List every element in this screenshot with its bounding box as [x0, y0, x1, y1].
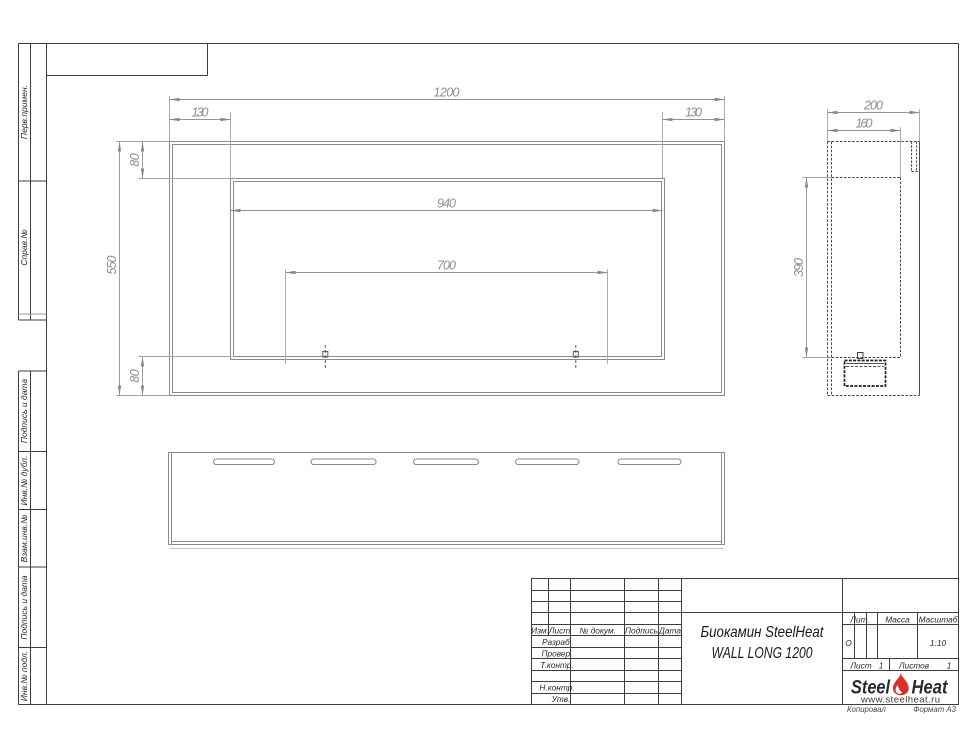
- svg-text:80: 80: [128, 153, 142, 167]
- svg-text:Подпись: Подпись: [625, 625, 658, 635]
- svg-text:130: 130: [685, 106, 702, 120]
- svg-text:Инв.№ дубл.: Инв.№ дубл.: [19, 456, 29, 506]
- svg-text:80: 80: [128, 369, 142, 383]
- svg-text:О: О: [845, 638, 852, 648]
- svg-text:700: 700: [437, 259, 456, 273]
- svg-text:1: 1: [947, 660, 952, 670]
- svg-text:Разраб.: Разраб.: [542, 637, 572, 647]
- svg-text:Листов: Листов: [898, 660, 930, 670]
- svg-text:Т.контр.: Т.контр.: [540, 660, 573, 670]
- svg-text:Подпись и дата: Подпись и дата: [19, 575, 29, 640]
- svg-text:Биокамин SteelHeat: Биокамин SteelHeat: [701, 624, 824, 641]
- svg-text:Лит.: Лит.: [849, 615, 869, 625]
- svg-text:Перв.примен.: Перв.примен.: [19, 85, 29, 139]
- svg-text:390: 390: [792, 258, 806, 277]
- svg-text:1: 1: [879, 660, 884, 670]
- svg-text:Масштаб: Масштаб: [919, 615, 958, 625]
- svg-text:Взам.инв.№: Взам.инв.№: [19, 515, 29, 563]
- svg-text:550: 550: [105, 255, 119, 274]
- svg-text:1200: 1200: [434, 86, 460, 100]
- svg-text:160: 160: [856, 117, 873, 131]
- svg-text:200: 200: [863, 99, 883, 113]
- svg-text:www.steelheat.ru: www.steelheat.ru: [860, 695, 940, 706]
- svg-text:Утв.: Утв.: [551, 694, 571, 704]
- svg-text:Лист: Лист: [548, 625, 570, 635]
- svg-text:Изм.: Изм.: [531, 625, 549, 635]
- svg-text:Лист: Лист: [849, 660, 871, 670]
- svg-text:Масса: Масса: [885, 615, 910, 625]
- svg-text:130: 130: [192, 106, 209, 120]
- svg-text:Справ.№: Справ.№: [19, 229, 29, 265]
- svg-text:Инв.№ подл.: Инв.№ подл.: [19, 651, 29, 701]
- svg-text:940: 940: [437, 197, 456, 211]
- svg-text:Дата: Дата: [658, 625, 681, 635]
- svg-text:Н.контр.: Н.контр.: [539, 683, 574, 693]
- svg-text:Провер.: Провер.: [542, 648, 573, 658]
- svg-text:№ докум.: № докум.: [579, 625, 616, 635]
- svg-text:WALL LONG 1200: WALL LONG 1200: [712, 645, 813, 662]
- svg-text:Копировал: Копировал: [847, 705, 886, 714]
- svg-text:1:10: 1:10: [930, 638, 947, 648]
- svg-text:Формат А3: Формат А3: [913, 705, 956, 714]
- svg-text:Подпись и дата: Подпись и дата: [19, 379, 29, 444]
